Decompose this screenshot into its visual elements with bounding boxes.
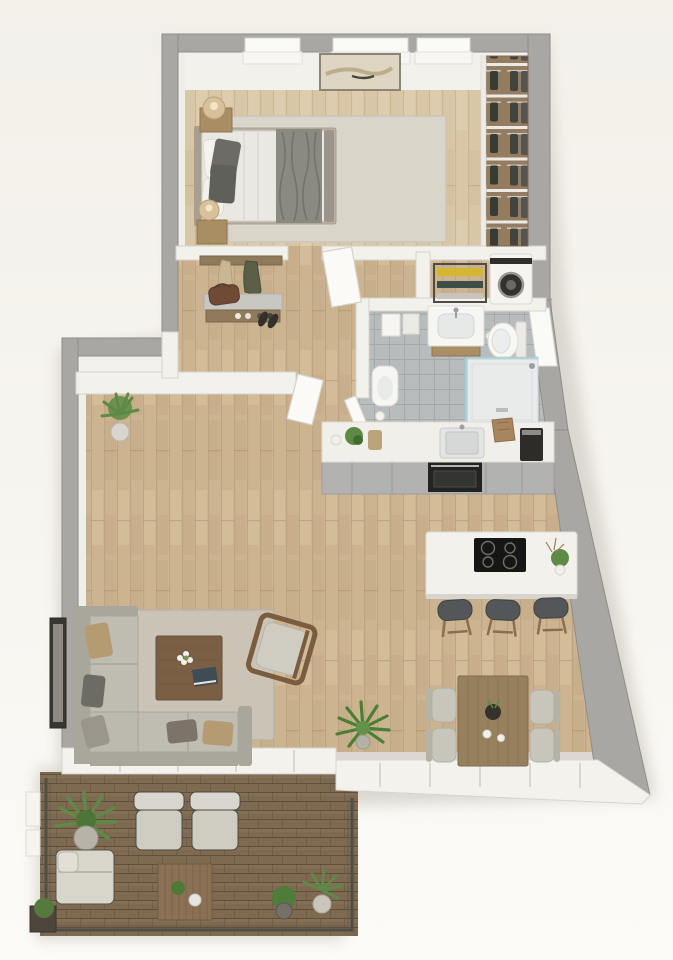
planter-white-1	[26, 792, 40, 826]
bathroom-left-wall	[356, 298, 369, 398]
living-step-wall	[62, 338, 178, 356]
outdoor-table-plant	[171, 881, 185, 895]
outdoor-chair-2-back	[190, 792, 240, 810]
washer-door-glass	[506, 280, 516, 290]
bed-pillow-dark-2	[208, 164, 237, 204]
outdoor-chair-1-seat	[136, 810, 182, 850]
shower-drain	[496, 408, 508, 412]
shower-head	[529, 363, 535, 369]
shower-enclosure	[466, 358, 538, 426]
dining-chair-3	[530, 690, 560, 724]
window-sill-3	[415, 52, 472, 64]
bidet	[372, 366, 398, 406]
washer-control-panel	[490, 258, 532, 264]
sun-lounger	[56, 850, 114, 904]
vanity-sink	[428, 306, 484, 356]
large-plant-pot	[74, 826, 98, 850]
towel-light	[437, 293, 483, 299]
living-top-wall-face	[78, 356, 176, 374]
outdoor-table-top	[158, 864, 212, 920]
dining-chair-2	[426, 728, 456, 762]
bed-foot-board	[324, 130, 334, 222]
kitchen-counter	[322, 418, 554, 462]
shower-tray	[466, 358, 538, 426]
nightstand-2	[197, 220, 227, 244]
bar-stools	[437, 597, 569, 637]
outdoor-chair-2-seat	[192, 810, 238, 850]
bedroom-left-wall	[162, 34, 178, 340]
console-shoe-1	[235, 313, 241, 319]
coat-shelf	[200, 256, 282, 265]
window-sill-1	[243, 52, 302, 64]
hall-living-wall-stub	[162, 332, 178, 378]
window-opening-1	[245, 38, 300, 52]
towel-yellow	[437, 268, 483, 276]
dining-cup-2	[498, 735, 505, 742]
coffee-table	[156, 636, 222, 700]
counter-faucet	[460, 425, 465, 430]
palm-pot	[356, 735, 370, 749]
window-opening-3	[417, 38, 470, 52]
towel-hanging-1	[382, 314, 400, 336]
dining-cup-1	[483, 730, 491, 738]
towel-hanging-2	[403, 314, 419, 334]
dining-chair-4	[530, 728, 560, 762]
closet-compartments	[486, 56, 528, 246]
window-opening-2	[333, 38, 408, 52]
room-dining: Dining area	[426, 676, 560, 766]
oven-window	[434, 471, 476, 487]
island-plant	[551, 549, 569, 567]
washing-machine	[490, 254, 532, 304]
outdoor-table-tray	[189, 894, 201, 906]
floor-plan-stage: One-bedroom apartment with balcony — 3D …	[0, 0, 673, 960]
floor-plan-render: One-bedroom apartment with balcony — 3D …	[0, 0, 673, 960]
induction-cooktop	[474, 538, 526, 572]
laundry-shelf	[434, 264, 486, 302]
table-lamp-2-glow	[206, 205, 213, 212]
cutting-board	[368, 430, 382, 450]
wardrobe-closet	[481, 56, 528, 246]
counter-plant-dark	[353, 435, 363, 445]
throw-pillow-dark-1	[81, 674, 106, 708]
dining-table	[458, 676, 528, 766]
palm-center	[356, 721, 370, 735]
lounger-back	[58, 852, 78, 872]
bidet-bowl	[377, 376, 393, 400]
dining-chair-1	[426, 688, 456, 722]
toilet-seat	[492, 329, 510, 353]
framed-art-canvas	[53, 624, 63, 722]
island-plant-vase	[555, 565, 565, 575]
centerpiece-bowl	[485, 704, 501, 720]
towel-teal	[437, 281, 483, 288]
hall-living-wall	[76, 372, 296, 394]
plant-foliage	[108, 396, 132, 420]
closet-front-edge	[481, 56, 486, 246]
counter-sink-basin	[446, 432, 478, 454]
kitchen-island	[426, 532, 577, 599]
sofa-back-bottom	[90, 752, 238, 766]
outdoor-table	[158, 864, 212, 920]
outdoor-chair-1	[134, 792, 184, 850]
planter-white-2	[26, 830, 40, 856]
throw-pillow-dark-2	[166, 719, 198, 744]
outdoor-chair-1-back	[134, 792, 184, 810]
counter-jar	[331, 435, 341, 445]
kitchen-cabinets	[322, 462, 554, 494]
table-lamp-1-glow	[210, 102, 218, 110]
console-shoe-2	[245, 313, 251, 319]
small-plant-1-pot	[276, 903, 292, 919]
wall-hung-toilet	[488, 322, 526, 359]
corner-planter-leaves	[34, 898, 54, 918]
outdoor-chair-2	[190, 792, 240, 850]
sofa-arm-right	[238, 706, 252, 766]
throw-pillow-tan-2	[202, 720, 234, 747]
small-plant-2-pot	[313, 895, 331, 913]
toilet-paper-roll	[376, 412, 385, 421]
plant-pot	[111, 423, 129, 441]
espresso-machine-top	[522, 430, 541, 435]
planter-dark-corner	[30, 898, 56, 932]
leather-bag	[208, 284, 240, 306]
